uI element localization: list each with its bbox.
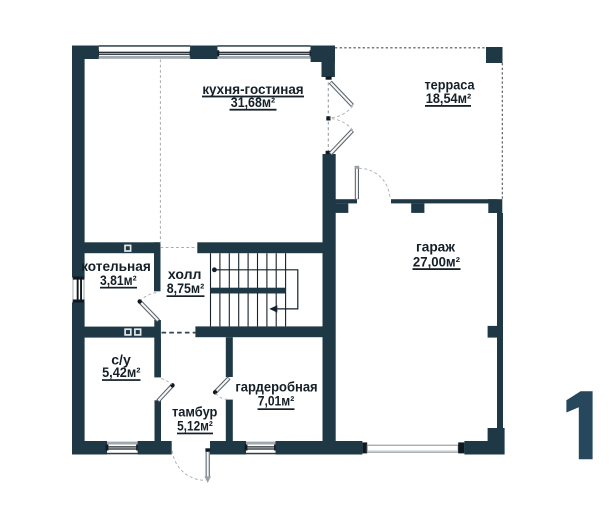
svg-text:8,75м²: 8,75м² (167, 280, 205, 296)
svg-text:18,54м²: 18,54м² (426, 90, 472, 106)
svg-text:5,42м²: 5,42м² (102, 364, 141, 380)
svg-text:3,81м²: 3,81м² (100, 272, 137, 288)
svg-text:27,00м²: 27,00м² (413, 253, 461, 269)
svg-text:7,01м²: 7,01м² (258, 393, 295, 409)
svg-text:гараж: гараж (416, 239, 456, 255)
svg-text:5,12м²: 5,12м² (177, 418, 213, 434)
svg-text:31,68м²: 31,68м² (231, 94, 276, 110)
